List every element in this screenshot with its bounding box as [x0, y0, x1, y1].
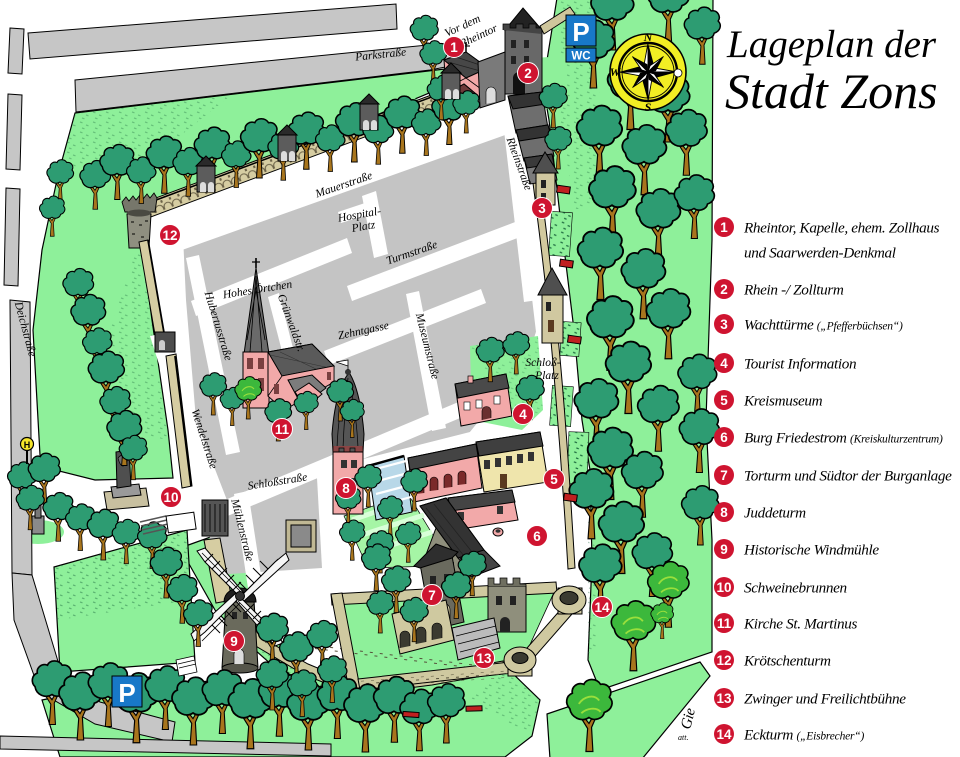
svg-text:9: 9 [230, 634, 238, 649]
svg-text:H: H [24, 440, 31, 450]
svg-text:WC: WC [571, 51, 590, 63]
svg-text:10: 10 [163, 490, 178, 505]
svg-text:Juddeturm: Juddeturm [744, 505, 806, 522]
svg-text:S: S [645, 100, 652, 114]
svg-text:3: 3 [720, 317, 728, 332]
svg-text:Schloß-: Schloß- [525, 357, 560, 369]
svg-text:5: 5 [550, 472, 558, 487]
svg-text:N: N [643, 30, 654, 44]
svg-text:8: 8 [720, 505, 728, 520]
svg-text:Schweinebrunnen: Schweinebrunnen [744, 580, 847, 597]
svg-text:P: P [572, 17, 589, 47]
svg-text:P: P [118, 678, 135, 708]
svg-text:att.: att. [678, 733, 688, 742]
svg-text:11: 11 [275, 422, 290, 437]
svg-text:Lageplan der: Lageplan der [726, 23, 937, 66]
svg-text:7: 7 [428, 588, 436, 603]
svg-text:Platz: Platz [534, 370, 559, 382]
svg-text:12: 12 [162, 228, 177, 243]
svg-text:Krötschenturm: Krötschenturm [743, 653, 831, 670]
svg-text:14: 14 [594, 600, 610, 615]
svg-text:13: 13 [476, 651, 492, 666]
svg-text:5: 5 [720, 393, 728, 408]
svg-text:Stadt Zons: Stadt Zons [725, 63, 938, 119]
svg-text:13: 13 [716, 691, 732, 706]
svg-text:6: 6 [533, 529, 541, 544]
svg-text:9: 9 [720, 542, 728, 557]
svg-text:14: 14 [716, 727, 732, 742]
svg-text:10: 10 [716, 580, 731, 595]
svg-text:4: 4 [720, 356, 728, 371]
svg-text:3: 3 [538, 201, 546, 216]
svg-text:Kreismuseum: Kreismuseum [743, 393, 823, 410]
svg-text:Rhein -/ Zollturm: Rhein -/ Zollturm [743, 282, 844, 299]
svg-text:11: 11 [717, 616, 732, 631]
svg-text:1: 1 [450, 40, 458, 55]
svg-text:12: 12 [716, 653, 731, 668]
svg-text:Torturm und Südtor der Burganl: Torturm und Südtor der Burganlage [744, 468, 952, 485]
svg-text:Historische Windmühle: Historische Windmühle [743, 542, 879, 559]
svg-text:8: 8 [342, 481, 350, 496]
svg-text:2: 2 [524, 66, 532, 81]
svg-text:6: 6 [720, 430, 728, 445]
svg-text:4: 4 [519, 407, 527, 422]
svg-text:W: W [610, 65, 622, 79]
svg-text:und Saarwerden-Denkmal: und Saarwerden-Denkmal [744, 245, 896, 262]
svg-text:1: 1 [720, 220, 728, 235]
svg-text:2: 2 [720, 282, 728, 297]
svg-text:Zwinger und Freilichtbühne: Zwinger und Freilichtbühne [744, 691, 906, 708]
svg-text:7: 7 [720, 468, 728, 483]
svg-text:Tourist Information: Tourist Information [744, 356, 856, 373]
svg-text:Rheintor, Kapelle, ehem. Zollh: Rheintor, Kapelle, ehem. Zollhaus [743, 220, 940, 237]
svg-text:Kirche St. Martinus: Kirche St. Martinus [743, 616, 857, 633]
